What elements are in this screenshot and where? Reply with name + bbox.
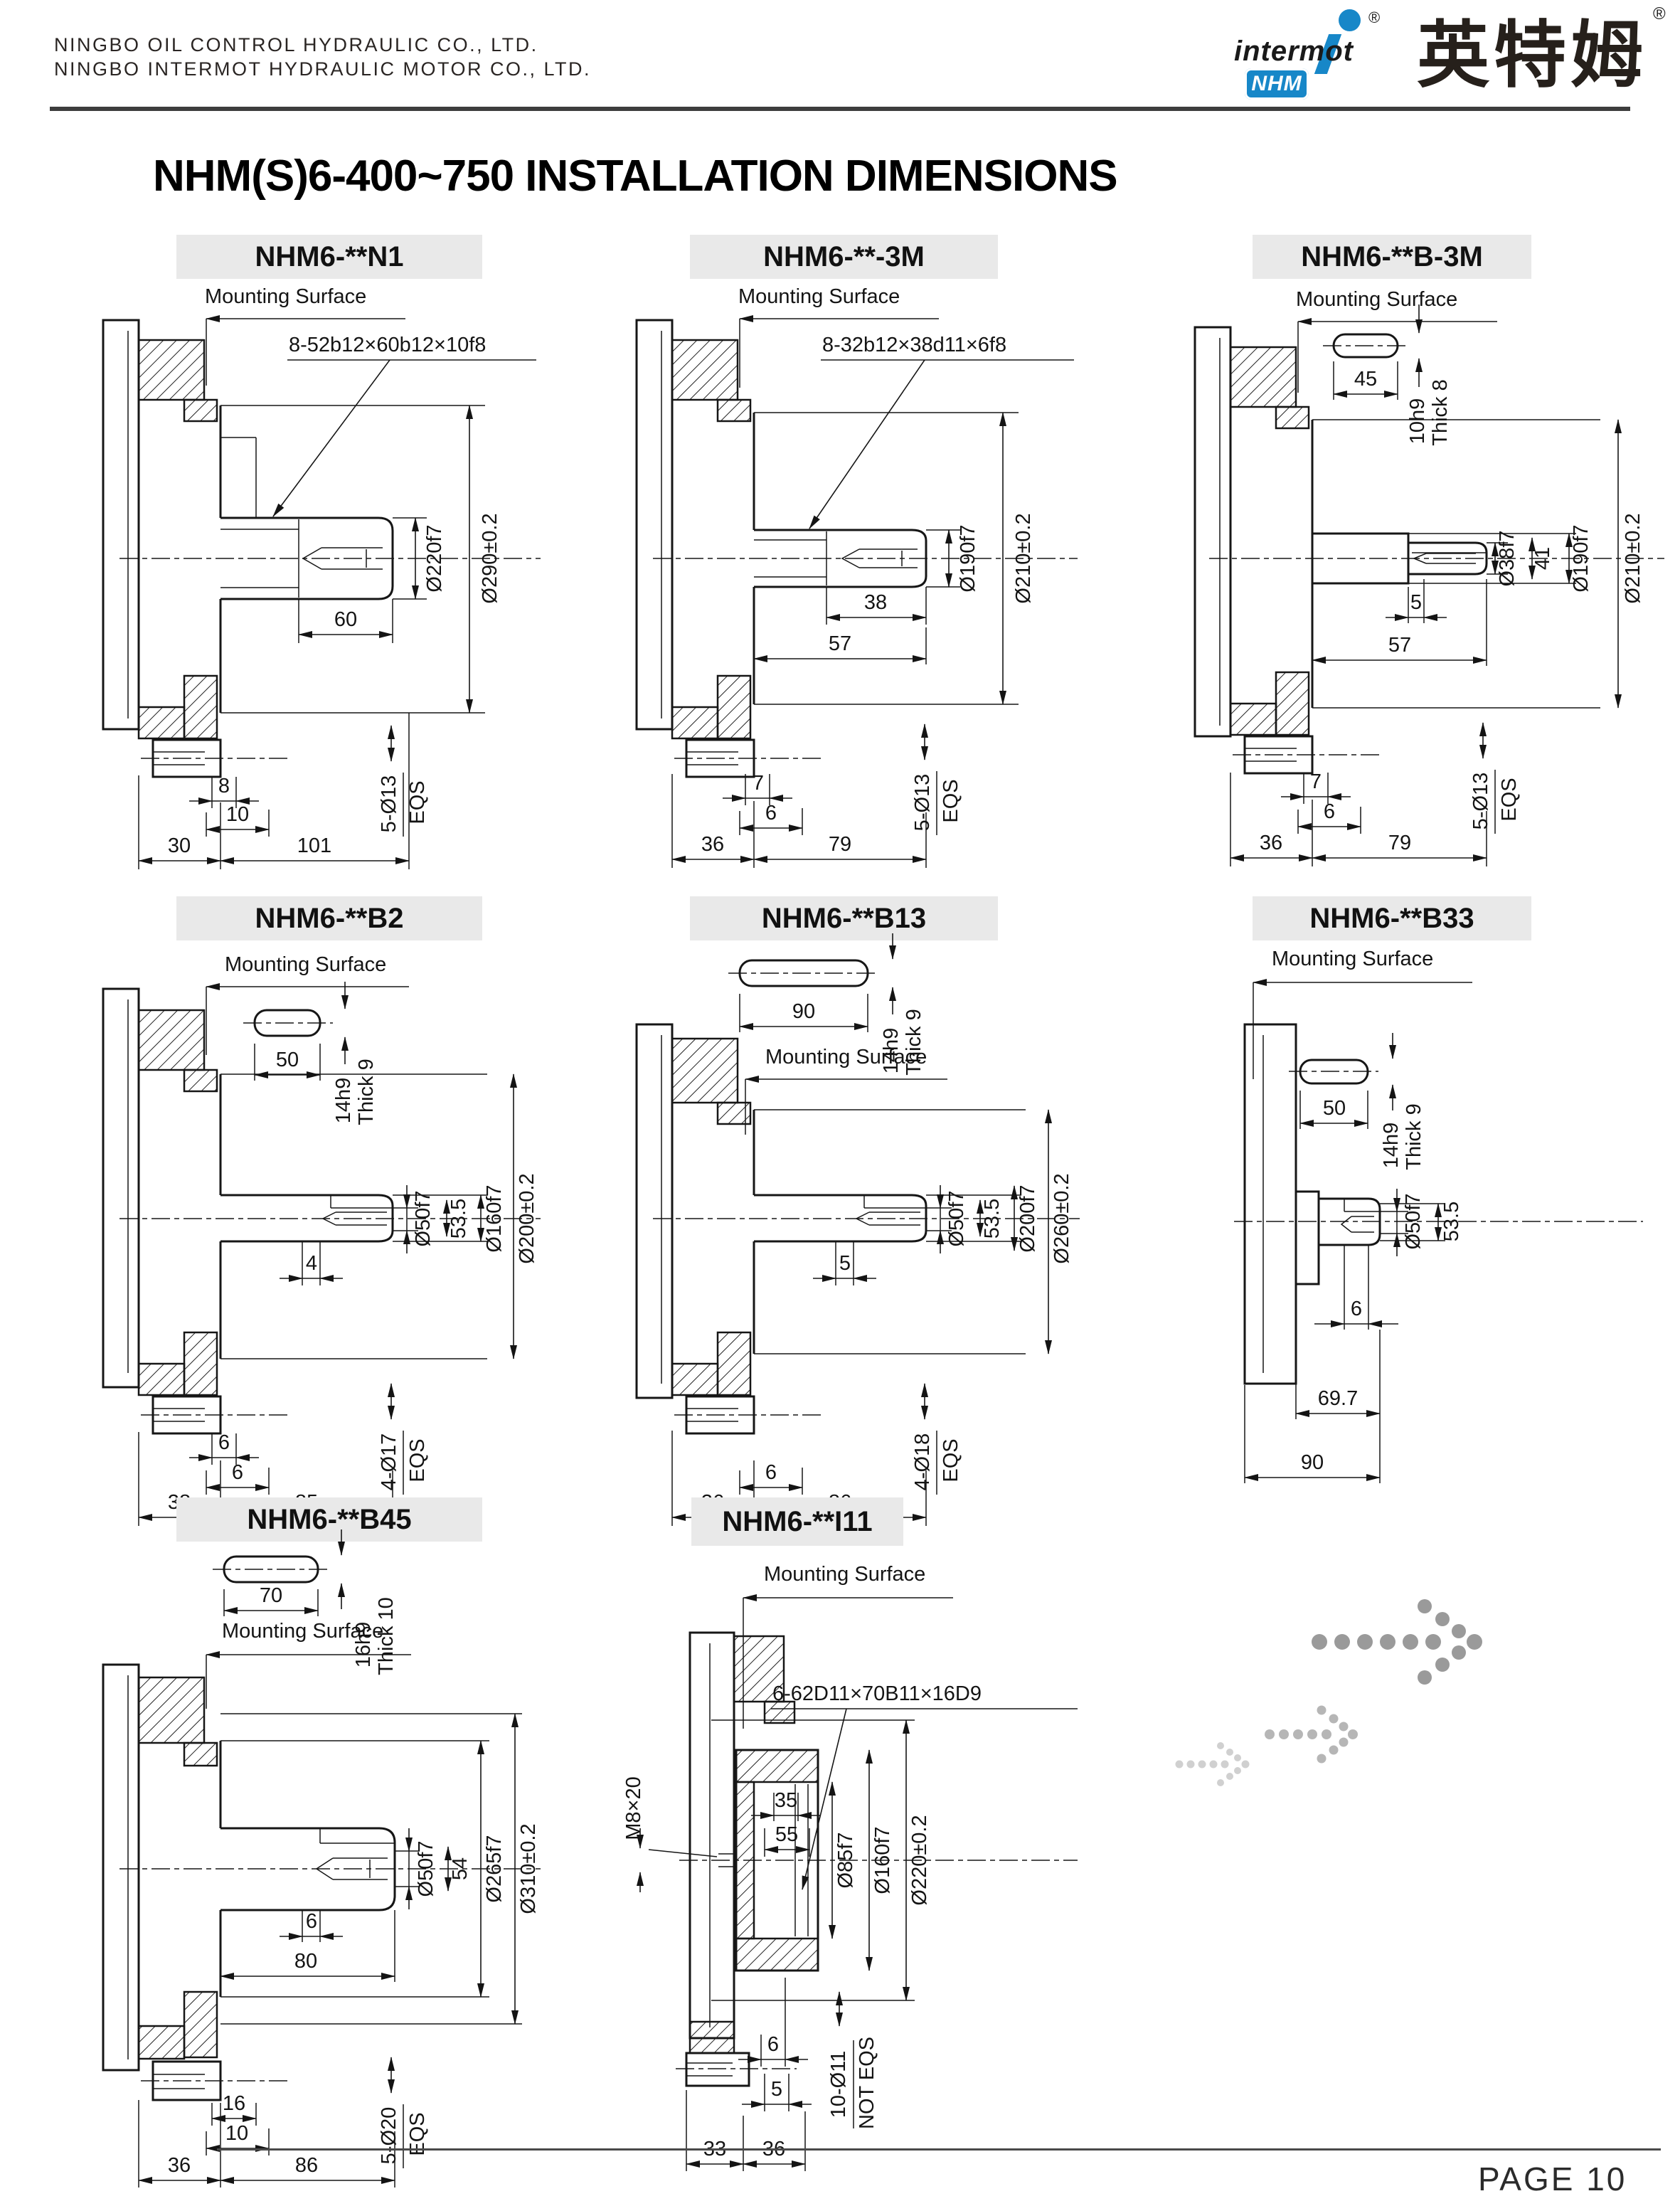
intermot-i-dot-icon [1339,9,1361,31]
dim-label: Ø290±0.2 [479,513,501,603]
dim-label: Ø210±0.2 [1622,513,1644,603]
key [1323,334,1408,357]
key [243,1010,333,1036]
brand-chinese: 英特姆 [1417,16,1647,95]
dim-label: 4-Ø17 [378,1433,400,1491]
dim-label: 36 [168,2154,191,2177]
page-number: PAGE 10 [1478,2160,1627,2198]
dim-label: 6 [765,802,777,824]
dim-label: 7 [753,772,764,795]
flange-section [103,1665,522,2100]
spline-spec-label: 8-52b12×60b12×10f8 [289,334,486,356]
dim-label: 45 [1354,368,1377,391]
dim-label: 5-Ø13 [1469,773,1492,830]
dim-label: 10-Ø11 [827,2051,850,2118]
dim-label: Thick 9 [1403,1103,1425,1170]
dim-label: 35 [775,1789,797,1812]
dim-label: Ø200±0.2 [516,1173,538,1263]
dim-label: 4-Ø18 [911,1433,934,1491]
dim-label: 6 [232,1461,243,1484]
dim-label: 5-Ø20 [378,2107,400,2165]
panel-nhm6-b2: NHM6-**B2 Mo [85,893,548,1533]
intermot-wordmark: intermot [1234,36,1354,68]
panel-nhm6-b45: NHM6-**B45 [85,1494,548,2205]
flange-section [1245,1024,1319,1384]
dim-label: NOT EQS [856,2037,878,2129]
dim-label: 53.5 [1440,1202,1463,1241]
panel-nhm6-b33: NHM6-**B33 Mounting Surface 50 [1174,893,1671,1497]
header-rule [50,107,1630,111]
dim-label: Ø160f7 [871,1826,894,1894]
dim-label: M8×20 [622,1776,645,1840]
dim-label: Ø50f7 [945,1191,968,1247]
mounting-surface-label: Mounting Surface [1272,948,1433,970]
dim-label: EQS [406,1438,429,1482]
dim-label: 50 [1323,1097,1346,1120]
panel-nhm6-n1: NHM6-**N1 Mountin [85,235,548,889]
key [1289,1060,1378,1083]
dim-label: Ø265f7 [483,1835,506,1902]
technical-drawing-b45: 70 16h9 Thick 10 Mounting Surface Ø50f7 … [85,1494,548,2205]
shaft [119,1828,541,1910]
company-name-line2: NINGBO INTERMOT HYDRAULIC MOTOR CO., LTD… [54,58,591,80]
catalog-page: NINGBO OIL CONTROL HYDRAULIC CO., LTD. N… [0,0,1680,2206]
key [213,1557,329,1582]
dim-label: 53.5 [447,1199,470,1239]
footer-rule [217,2148,1661,2151]
dim-label: 50 [276,1049,299,1071]
dim-label: 10 [226,803,249,826]
arrow-large-icon [1312,1599,1482,1685]
dim-label: 101 [297,834,331,857]
technical-drawing-b3m: Mounting Surface 45 10h9 Thick 8 Ø38f7 4… [1174,235,1671,896]
dim-label: EQS [406,780,429,824]
dim-label: 86 [295,2154,318,2177]
mounting-surface-label: Mounting Surface [1296,288,1457,311]
dim-label: 36 [701,833,724,856]
page-title: NHM(S)6-400~750 INSTALLATION DIMENSIONS [153,151,1117,201]
dim-label: Ø260±0.2 [1051,1173,1073,1263]
dim-label: Thick 8 [1429,379,1452,445]
technical-drawing-i11: Mounting Surface 6-62D11×70B11×16D9 M8×2… [619,1494,1088,2205]
dim-label: 6 [306,1910,317,1933]
dim-label: 14h9 [332,1078,355,1124]
dim-label: 41 [1531,547,1554,570]
dim-label: EQS [940,779,962,822]
dim-label: 6 [765,1461,777,1484]
dim-label: EQS [1498,778,1521,821]
arrow-small-icon [1176,1742,1250,1786]
dim-label: 16 [223,2092,245,2115]
dim-label: 10h9 [1406,398,1429,445]
shaft [653,1195,1080,1241]
dim-label: 10 [225,2122,248,2145]
dim-label: 79 [1388,832,1411,854]
dim-label: Ø190f7 [1570,524,1593,592]
dim-label: Ø190f7 [957,524,979,592]
mounting-surface-label: Mounting Surface [765,1046,927,1068]
dim-label: 55 [775,1823,798,1846]
dim-label: Ø85f7 [834,1833,857,1889]
dim-label: 80 [294,1950,317,1973]
dim-label: 69.7 [1318,1387,1358,1410]
dimensions: 90 14h9 Thick 9 Mounting Surface Ø50f7 5… [672,933,1073,1526]
dim-label: EQS [940,1438,962,1482]
mounting-surface-label: Mounting Surface [764,1563,925,1586]
mounting-surface-label: Mounting Surface [738,285,900,308]
dim-label: 5 [839,1252,851,1275]
shaft [119,518,541,599]
dim-label: 6 [767,2033,779,2056]
dim-label: 36 [1260,832,1282,854]
dim-label: 6 [218,1431,230,1454]
dim-label: 90 [1301,1451,1324,1474]
technical-drawing-n1: Mounting Surface 8-52b12×60b12×10f8 60 Ø… [85,235,548,889]
dim-label: Ø310±0.2 [517,1823,540,1914]
dimensions: Mounting Surface 50 14h9 Thick 9 Ø50f7 5… [1245,948,1472,1483]
dim-label: 7 [1310,770,1322,793]
technical-drawing-b33: Mounting Surface 50 14h9 Thick 9 Ø50f7 5… [1174,893,1671,1497]
dim-label: Ø50f7 [415,1841,437,1897]
dim-label: 5-Ø13 [911,774,934,832]
shaft [119,1195,541,1241]
mounting-surface-label: Mounting Surface [205,285,366,308]
dim-label: 6 [1324,800,1335,823]
panel-nhm6-b13: NHM6-**B13 [619,893,1088,1533]
dim-label: 60 [334,608,357,631]
dim-label: 5-Ø13 [378,775,400,833]
dim-label: 8 [218,775,230,797]
registered-mark: ® [1653,4,1666,24]
company-name-line1: NINGBO OIL CONTROL HYDRAULIC CO., LTD. [54,34,538,56]
registered-mark: ® [1368,9,1380,27]
panel-nhm6-3m: NHM6-**-3M Mounting Surfac [619,235,1081,889]
key [728,960,879,986]
dim-label: 14h9 [1380,1123,1403,1169]
dim-label: 70 [260,1584,282,1607]
technical-drawing-b2: Mounting Surface 50 14h9 Thick 9 Ø50f7 5… [85,893,548,1533]
dim-label: 5 [1410,591,1422,614]
dim-label: Ø220±0.2 [908,1815,931,1905]
dim-label: 53.5 [981,1199,1004,1239]
panel-nhm6-i11: NHM6-**I11 Mounti [619,1494,1088,2205]
dim-label: Ø200f7 [1016,1184,1039,1252]
dim-label: 54 [449,1857,472,1880]
dim-label: Ø50f7 [412,1191,435,1247]
spline-spec-label: 6-62D11×70B11×16D9 [772,1682,982,1705]
technical-drawing-3m: Mounting Surface 8-32b12×38d11×6f8 38 57… [619,235,1081,889]
dim-label: 38 [864,591,887,614]
dim-label: Ø220f7 [423,524,446,592]
dim-label: 57 [1388,634,1411,657]
dim-label: Ø38f7 [1496,531,1519,587]
technical-drawing-b13: 90 14h9 Thick 9 Mounting Surface Ø50f7 5… [619,893,1088,1533]
dim-label: Ø160f7 [483,1184,506,1252]
dim-label: Thick 9 [355,1059,378,1125]
dim-label: 79 [829,833,851,856]
dim-label: 5 [771,2078,782,2101]
dim-label: 57 [829,632,851,655]
nhm-badge: NHM [1245,68,1309,100]
arrow-medium-icon [1265,1706,1358,1764]
dotted-arrows-decoration [1159,1586,1501,1821]
dim-label: 4 [306,1252,317,1275]
panel-nhm6-b-3m: NHM6-**B-3M [1174,235,1671,896]
mounting-surface-label: Mounting Surface [222,1620,383,1643]
dim-label: 30 [168,834,191,857]
spline-spec-label: 8-32b12×38d11×6f8 [822,334,1006,356]
dim-label: 6 [1351,1298,1362,1320]
shaft [1209,534,1664,583]
dim-label: 90 [792,1000,815,1023]
dim-label: Ø210±0.2 [1012,513,1035,603]
mounting-surface-label: Mounting Surface [225,953,386,976]
